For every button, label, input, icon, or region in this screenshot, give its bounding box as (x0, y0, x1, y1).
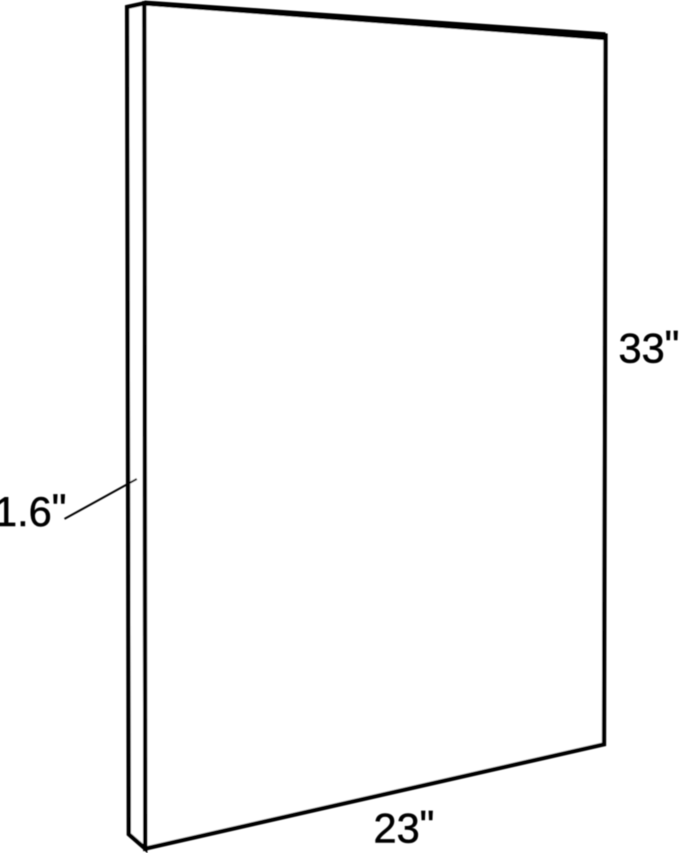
svg-text:23": 23" (374, 802, 435, 852)
svg-text:1.6": 1.6" (0, 485, 66, 535)
svg-text:33": 33" (619, 322, 679, 372)
